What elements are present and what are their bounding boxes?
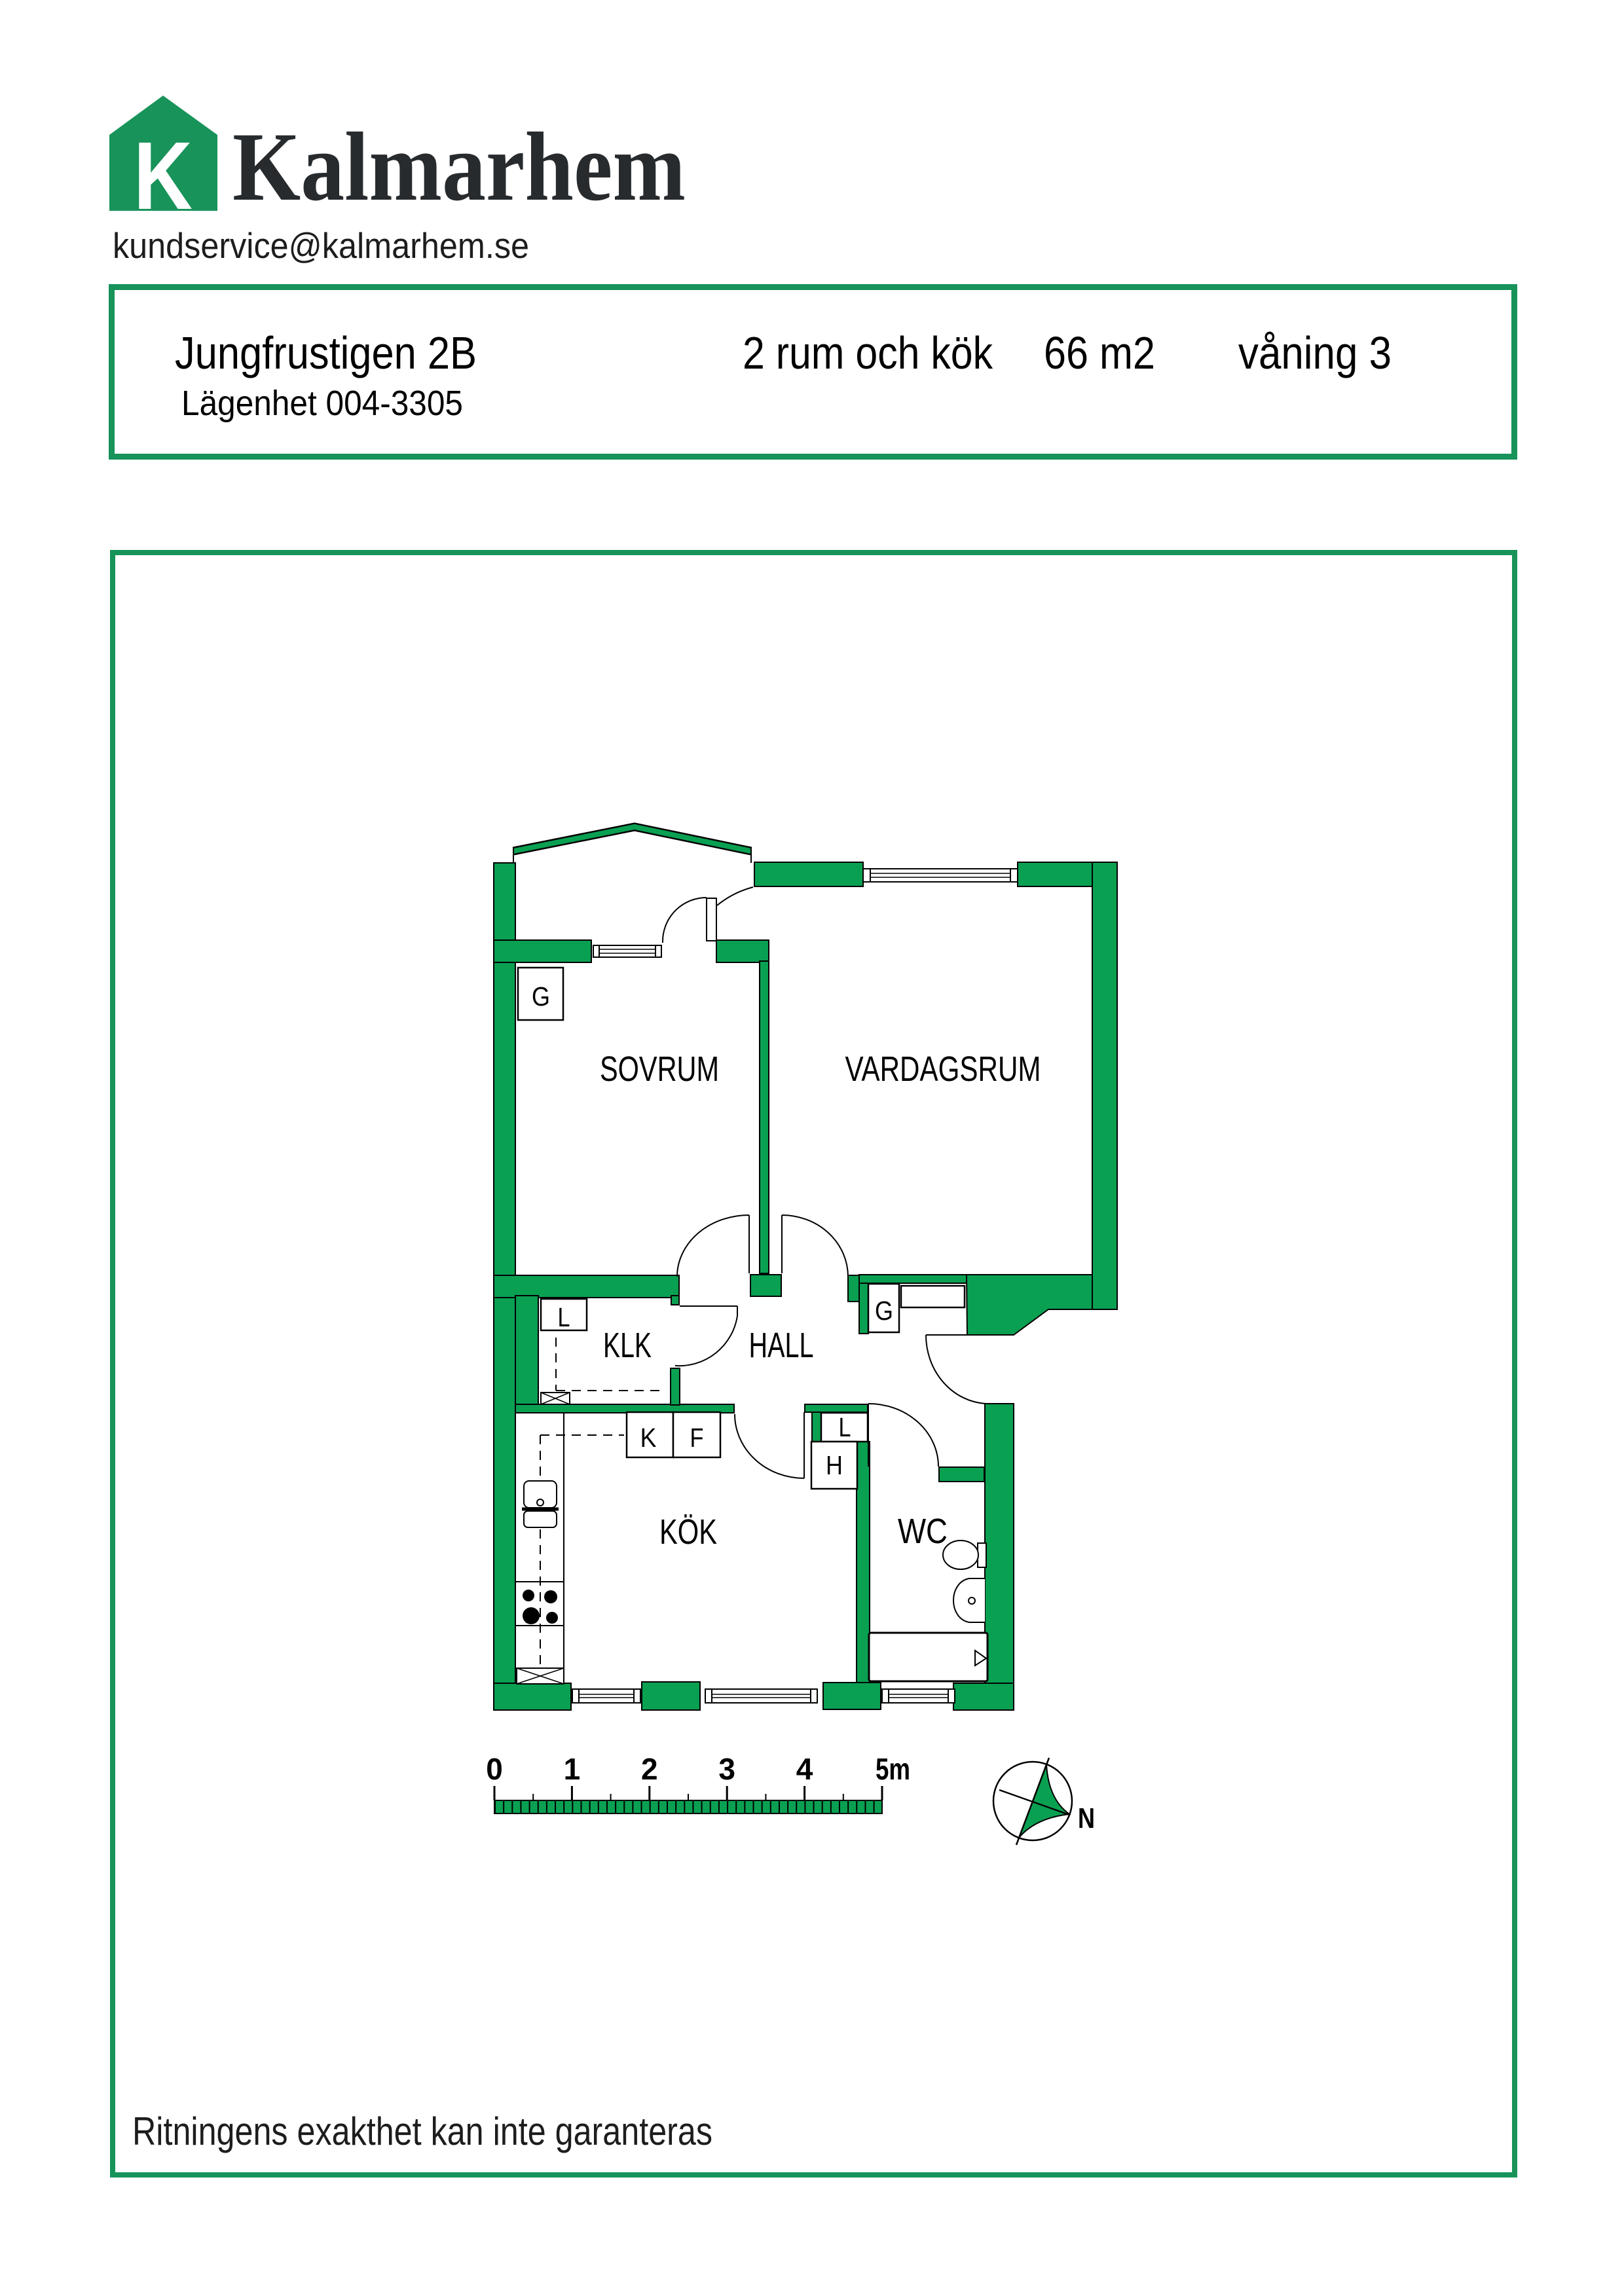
svg-text:4: 4 [796,1752,813,1786]
svg-text:2 rum och kök: 2 rum och kök [743,327,993,378]
svg-text:L: L [558,1302,570,1332]
svg-text:Kalmarhem: Kalmarhem [232,113,686,221]
svg-text:KÖK: KÖK [659,1512,717,1552]
svg-text:KLK: KLK [603,1326,652,1365]
svg-text:Ritningens exakthet kan inte g: Ritningens exakthet kan inte garanteras [132,2109,712,2153]
svg-text:SOVRUM: SOVRUM [600,1049,719,1089]
svg-text:3: 3 [718,1752,735,1786]
svg-text:WC: WC [898,1512,948,1551]
svg-text:F: F [690,1423,704,1453]
svg-text:G: G [875,1296,893,1326]
svg-text:N: N [1078,1802,1095,1834]
svg-text:K: K [134,122,193,230]
svg-text:5m: 5m [876,1752,910,1786]
svg-text:Jungfrustigen 2B: Jungfrustigen 2B [175,327,477,378]
svg-text:K: K [640,1423,657,1453]
svg-text:Lägenhet 004-3305: Lägenhet 004-3305 [181,384,463,423]
svg-text:L: L [839,1412,851,1442]
svg-text:våning 3: våning 3 [1238,327,1392,378]
svg-text:HALL: HALL [749,1326,814,1365]
svg-text:G: G [532,981,550,1011]
svg-text:66 m2: 66 m2 [1044,327,1155,378]
svg-text:1: 1 [564,1752,581,1786]
svg-text:H: H [826,1450,843,1480]
svg-text:VARDAGSRUM: VARDAGSRUM [845,1049,1041,1089]
svg-text:kundservice@kalmarhem.se: kundservice@kalmarhem.se [113,225,529,266]
svg-text:0: 0 [486,1752,503,1786]
svg-text:2: 2 [641,1752,658,1786]
